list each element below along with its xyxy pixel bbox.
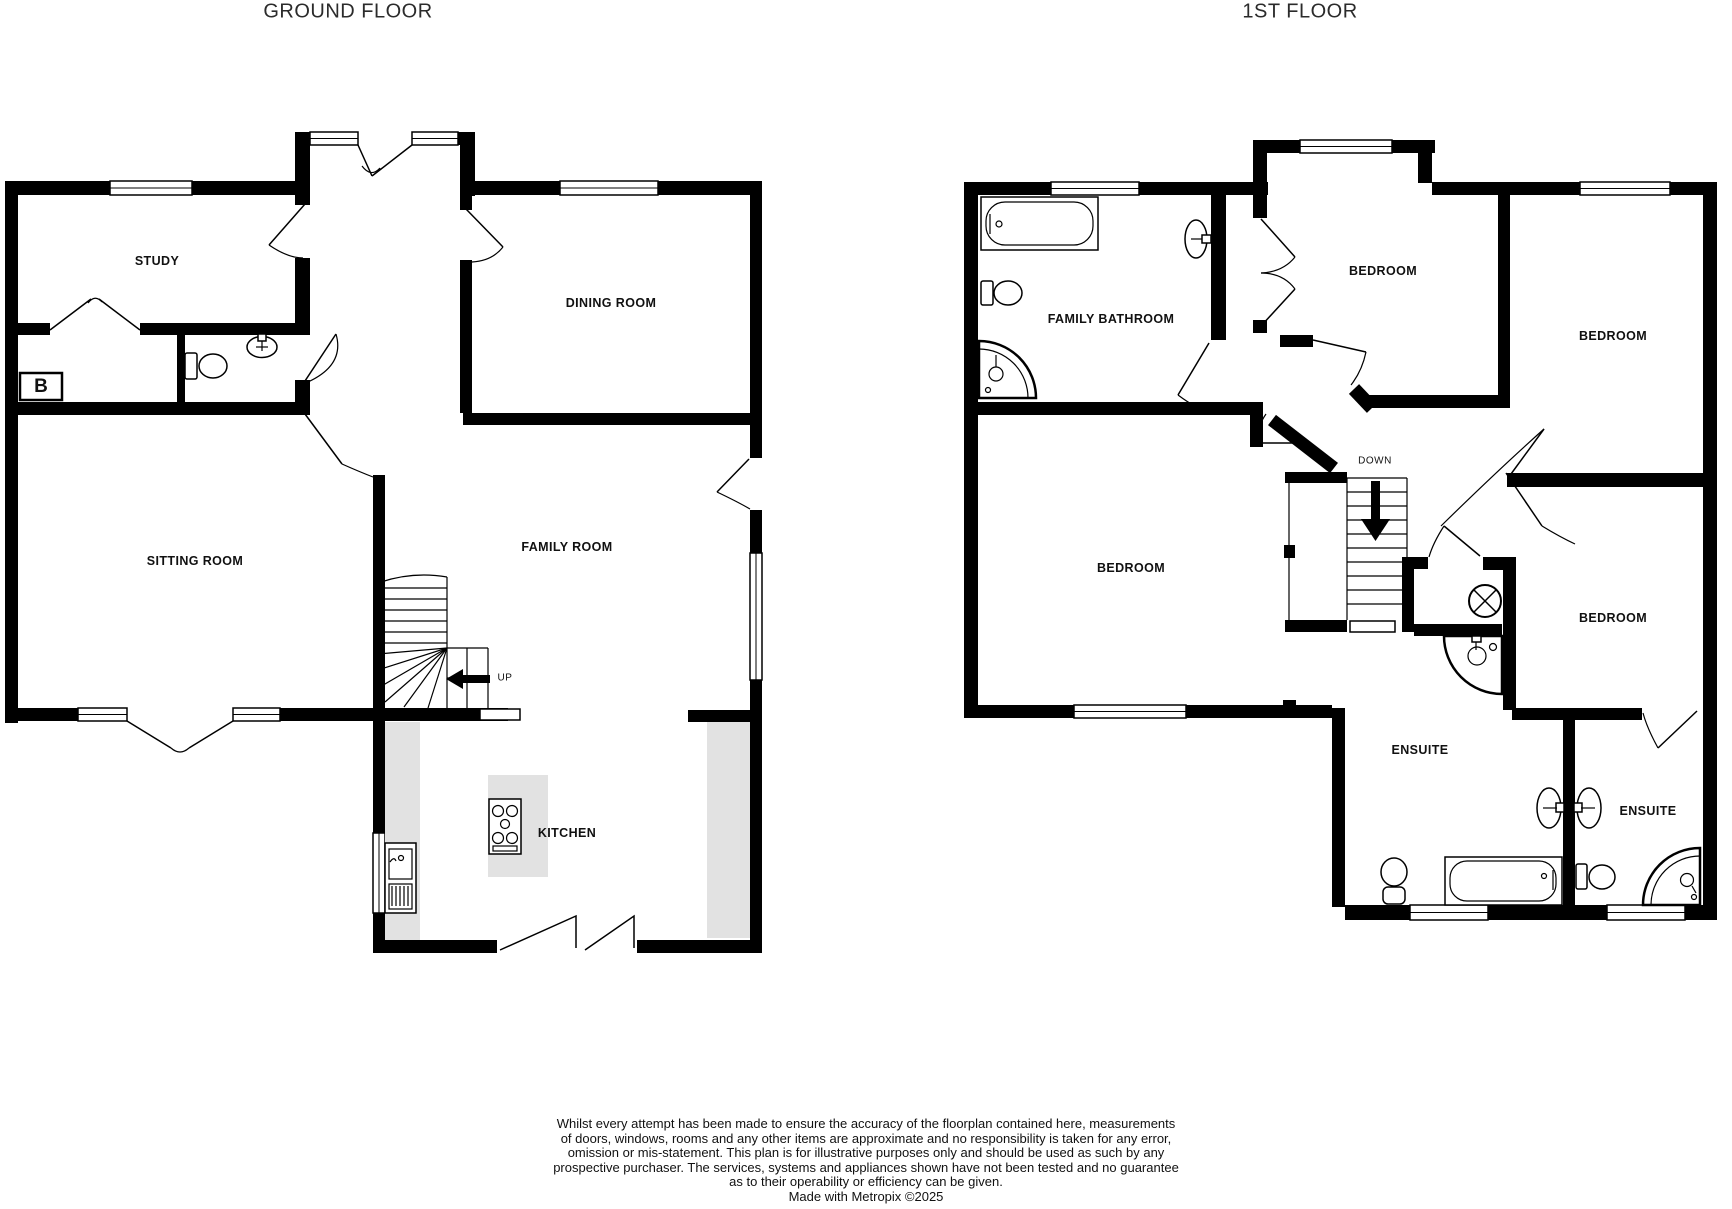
- room-label-bedroom-middle-right: BEDROOM: [1579, 611, 1647, 625]
- room-label-bedroom-left: BEDROOM: [1097, 561, 1165, 575]
- floorplan-page: .w{fill:#000;} .win{fill:#fff;stroke:#00…: [0, 0, 1732, 1209]
- room-label-sitting-room: SITTING ROOM: [147, 554, 243, 568]
- window: [1580, 182, 1670, 195]
- toilet-icon: [185, 353, 227, 379]
- window: [1074, 705, 1186, 718]
- disclaimer-line: Whilst every attempt has been made to en…: [476, 1117, 1256, 1132]
- counter: [707, 722, 750, 938]
- room-label-dining-room: DINING ROOM: [566, 296, 657, 310]
- floorplan-drawing: .w{fill:#000;} .win{fill:#fff;stroke:#00…: [0, 0, 1732, 1209]
- toilet-icon: [1576, 864, 1615, 889]
- window: [233, 708, 280, 721]
- window: [560, 181, 658, 195]
- disclaimer-line: prospective purchaser. The services, sys…: [476, 1161, 1256, 1176]
- ensuite1-fixtures: [1381, 636, 1562, 905]
- window: [1607, 905, 1685, 920]
- stairs-down-icon: [1347, 478, 1407, 632]
- study-hall-door: [269, 204, 305, 258]
- first-floor-plan: [964, 140, 1717, 920]
- basin-icon: [1574, 788, 1601, 828]
- bath-icon: [981, 197, 1098, 250]
- window: [1051, 182, 1139, 195]
- hob-icon: [489, 799, 521, 854]
- toilet-icon: [1381, 858, 1407, 904]
- ground-floor-plan: [5, 132, 762, 953]
- bath-icon: [1445, 857, 1562, 905]
- window: [412, 132, 458, 145]
- ensuite-2-door: [1643, 711, 1697, 748]
- window: [1300, 140, 1392, 153]
- first-walls: [964, 140, 1717, 920]
- window: [373, 833, 385, 913]
- room-label-family-room: FAMILY ROOM: [521, 540, 612, 554]
- room-label-ensuite-2: ENSUITE: [1620, 804, 1677, 818]
- stairs-up-icon: [378, 575, 490, 708]
- room-label-ensuite-1: ENSUITE: [1392, 743, 1449, 757]
- kitchen-sink-icon: [385, 843, 416, 913]
- room-label-bedroom-top-center: BEDROOM: [1349, 264, 1417, 278]
- boiler-label: B: [34, 376, 48, 398]
- ground-floor-title: GROUND FLOOR: [263, 1, 432, 24]
- disclaimer-line: omission or mis-statement. This plan is …: [476, 1146, 1256, 1161]
- wc-door: [303, 334, 338, 384]
- corner-shower-icon: [1643, 848, 1700, 905]
- room-label-kitchen: KITCHEN: [538, 826, 596, 840]
- window: [1410, 905, 1488, 920]
- entrance-double-door: [358, 145, 412, 176]
- wc-fixtures: [185, 334, 277, 379]
- sitting-room-door: [305, 414, 373, 477]
- cylinder-icon: [1469, 585, 1501, 617]
- window: [750, 553, 762, 680]
- room-label-study: STUDY: [135, 254, 179, 268]
- basin-icon: [247, 334, 277, 358]
- disclaimer: Whilst every attempt has been made to en…: [476, 1117, 1256, 1205]
- room-label-family-bathroom: FAMILY BATHROOM: [1048, 312, 1175, 326]
- stairs-up-label: UP: [498, 673, 513, 684]
- bathroom-fixtures: [979, 197, 1211, 398]
- corner-shower-icon: [979, 341, 1036, 398]
- disclaimer-line: as to their operability or efficiency ca…: [476, 1175, 1256, 1190]
- toilet-icon: [981, 281, 1022, 305]
- study-double-door: [50, 298, 140, 330]
- room-label-bedroom-top-right: BEDROOM: [1579, 329, 1647, 343]
- stair-landing-strip: [480, 709, 520, 720]
- pedestal-basin-icon: [1185, 220, 1211, 258]
- first-floor-title: 1ST FLOOR: [1242, 1, 1357, 24]
- window: [110, 181, 192, 195]
- bay-window-icon: [127, 721, 233, 752]
- window: [78, 708, 127, 721]
- window: [310, 132, 358, 145]
- landing-corridor-door: [1313, 340, 1366, 385]
- disclaimer-credit: Made with Metropix ©2025: [476, 1190, 1256, 1205]
- ground-walls: [5, 132, 762, 953]
- disclaimer-line: of doors, windows, rooms and any other i…: [476, 1132, 1256, 1147]
- corner-basin-icon: [1444, 636, 1502, 694]
- family-room-door: [717, 459, 750, 509]
- bedroom-double-doors: [1261, 219, 1295, 326]
- basin-icon: [1537, 788, 1564, 828]
- kitchen-french-doors: [500, 916, 634, 950]
- dining-door: [466, 209, 503, 262]
- stairs-down-label: DOWN: [1358, 456, 1392, 467]
- cupboard-door: [1429, 526, 1480, 557]
